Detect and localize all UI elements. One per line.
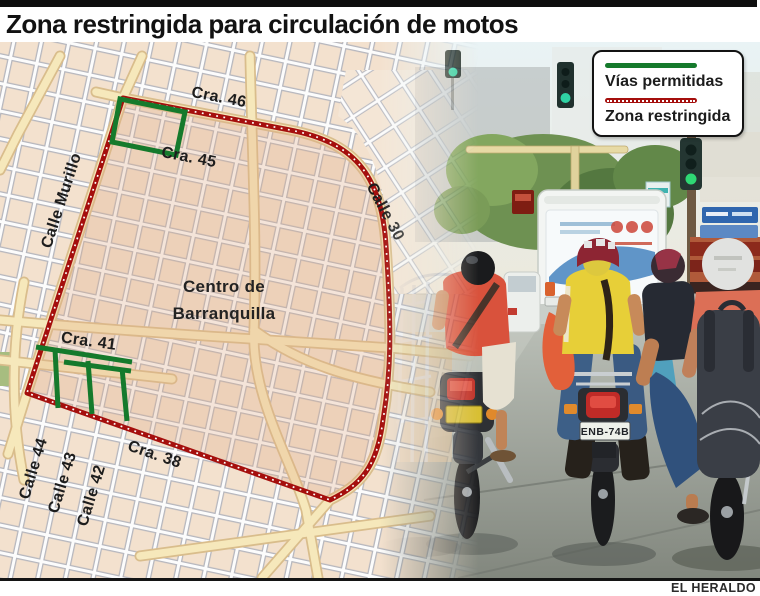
legend-permitted-label: Vías permitidas [605, 73, 731, 91]
source-credit: EL HERALDO [671, 581, 756, 595]
top-rule [0, 0, 757, 7]
infographic: Zona restringida para circulación de mot… [0, 0, 760, 596]
legend-restricted-label: Zona restringida [605, 108, 731, 126]
permitted-line-swatch [605, 63, 697, 68]
bottom-rule [0, 578, 760, 581]
label-centro-line2: Barranquilla [173, 304, 276, 323]
label-centro-line1: Centro de [183, 277, 265, 296]
legend: Vías permitidas Zona restringida [592, 50, 744, 137]
graphic-area: ENB-74B [0, 42, 760, 578]
restricted-line-swatch [605, 98, 697, 103]
page-title: Zona restringida para circulación de mot… [6, 9, 754, 40]
